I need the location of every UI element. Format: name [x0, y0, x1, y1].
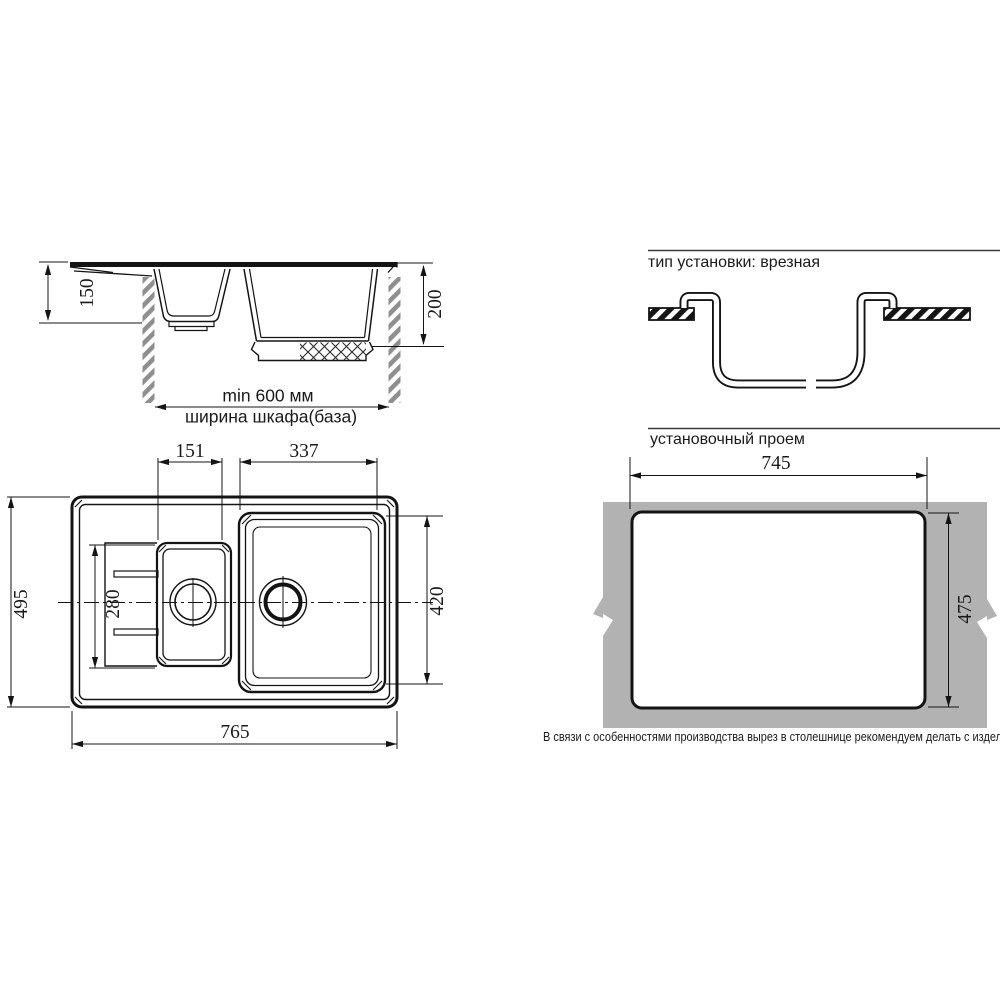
installation-type-title: тип установки: врезная: [648, 254, 820, 272]
cabinet-wall-hatch-left: [143, 277, 155, 403]
dim-label-200: 200: [425, 289, 447, 318]
drawing-graphics: [0, 0, 1000, 1001]
installation-type-drawing: [648, 251, 1000, 429]
cabinet-caption-label: ширина шкафа(база): [185, 407, 357, 428]
dim-label-420: 420: [427, 586, 449, 615]
dimension-337: [240, 458, 377, 510]
dim-label-150: 150: [77, 278, 99, 307]
dim-label-280: 280: [103, 589, 125, 618]
dimension-151: [158, 458, 222, 540]
cutout-title: установочный проем: [650, 431, 805, 449]
dim-label-475: 475: [955, 594, 977, 623]
dim-label-765: 765: [220, 722, 249, 744]
cutout-drawing: [593, 457, 997, 728]
dim-label-337: 337: [289, 441, 318, 463]
small-bowl: [157, 543, 231, 666]
sink-edge-profile-left: [684, 297, 806, 385]
drain-crosshatch: [300, 343, 366, 361]
production-note: В связи с особенностями производства выр…: [543, 730, 1000, 744]
sink-section-profile: [70, 262, 397, 361]
sink-technical-drawing: 150 200 min 600 мм ширина шкафа(база) ти…: [0, 0, 1000, 1001]
dim-label-151: 151: [175, 441, 204, 463]
cabinet-wall-hatch-right: [389, 277, 401, 403]
cabinet-min-width-label: min 600 мм: [222, 386, 313, 407]
dim-label-495: 495: [11, 589, 33, 618]
countertop-hatch-right: [884, 308, 970, 320]
top-view-drawing: [7, 458, 443, 749]
cutout-opening: [632, 512, 925, 708]
sink-edge-profile-right: [816, 297, 893, 385]
countertop-hatch-left: [649, 308, 694, 320]
dim-label-745: 745: [761, 453, 790, 475]
